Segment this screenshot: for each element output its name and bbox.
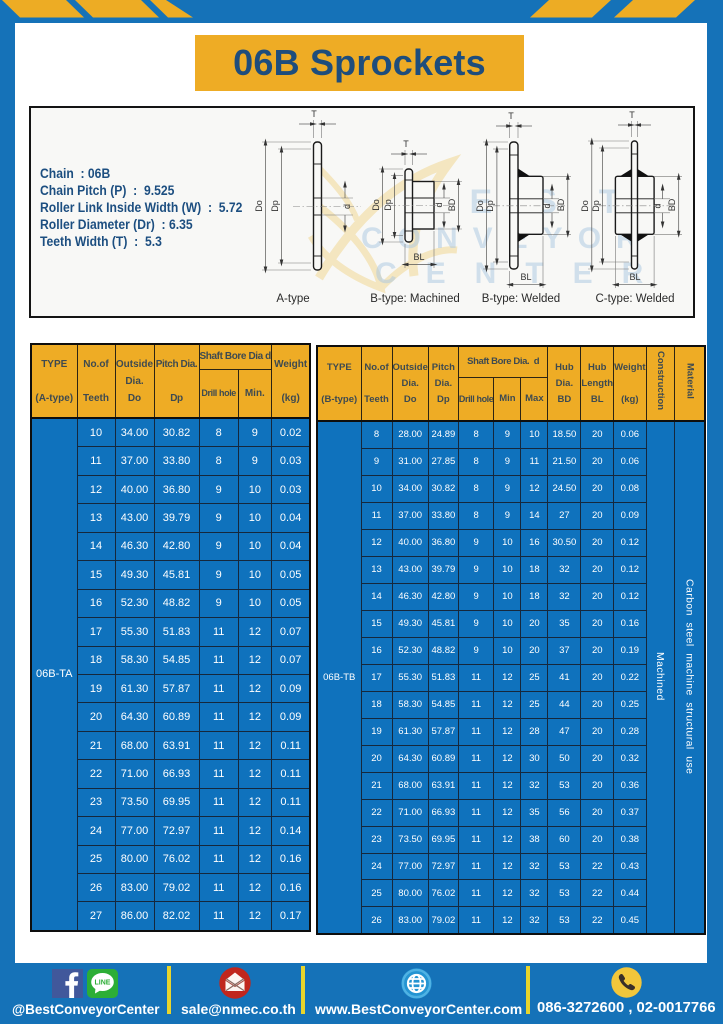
svg-text:Dp: Dp bbox=[383, 199, 393, 211]
svg-text:B-type: Welded: B-type: Welded bbox=[482, 293, 560, 305]
svg-text:d: d bbox=[653, 203, 663, 208]
svg-text:BD: BD bbox=[556, 198, 566, 211]
svg-text:B-type: Machined: B-type: Machined bbox=[370, 293, 460, 305]
svg-text:BL: BL bbox=[413, 252, 424, 262]
svg-text:BL: BL bbox=[629, 272, 640, 282]
svg-text:Do: Do bbox=[580, 200, 590, 212]
svg-text:C-type: Welded: C-type: Welded bbox=[595, 293, 674, 305]
svg-text:d: d bbox=[434, 202, 444, 207]
svg-text:LINE: LINE bbox=[95, 980, 111, 987]
svg-text:T: T bbox=[629, 110, 635, 120]
svg-text:BL: BL bbox=[520, 272, 531, 282]
svg-text:T: T bbox=[403, 139, 409, 149]
svg-text:Do: Do bbox=[371, 199, 381, 211]
svg-text:A-type: A-type bbox=[276, 293, 309, 305]
svg-text:Dp: Dp bbox=[270, 200, 280, 212]
svg-text:BD: BD bbox=[447, 198, 457, 211]
svg-text:Do: Do bbox=[475, 200, 485, 212]
svg-text:d: d bbox=[342, 204, 352, 209]
svg-text:Dp: Dp bbox=[591, 200, 601, 212]
svg-text:BD: BD bbox=[667, 198, 677, 211]
svg-text:T: T bbox=[508, 111, 514, 121]
svg-text:d: d bbox=[542, 203, 552, 208]
svg-text:T: T bbox=[311, 109, 317, 119]
svg-text:Dp: Dp bbox=[485, 200, 495, 212]
